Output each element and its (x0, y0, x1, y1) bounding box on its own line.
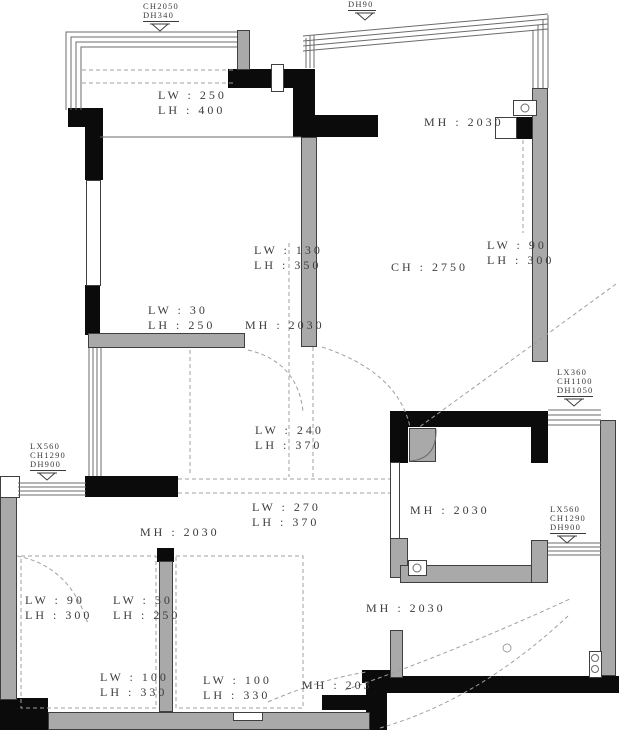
beam-label-7: LW : 90LH : 300 (25, 593, 92, 623)
beam-label-6: LW : 270LH : 370 (252, 500, 321, 530)
window-label-top-mid: DH90 (348, 0, 376, 21)
door-label-1: MH : 2030 (424, 115, 504, 130)
down-arrow-icon (36, 472, 66, 481)
down-arrow-icon (149, 23, 179, 32)
window-label-right-upper: LX360 CH1100 DH1050 (557, 368, 593, 407)
door-label-4: MH : 2030 (140, 525, 220, 540)
beam-label-4: LW : 30LH : 250 (148, 303, 215, 333)
door-label-5: MH : 2030 (366, 601, 446, 616)
beam-label-8: LW : 30LH : 250 (113, 593, 180, 623)
door-label-3: MH : 2030 (410, 503, 490, 518)
beam-label-1: LW : 250LH : 400 (158, 88, 227, 118)
ceiling-label: CH : 2750 (391, 260, 468, 275)
window-label-top-left: LX300 CH2050 DH340 (143, 0, 179, 32)
beam-label-10: LW : 100LH : 330 (203, 673, 272, 703)
window-label-left: LX560 CH1290 DH900 (30, 442, 66, 481)
door-label-2: MH : 2030 (245, 318, 325, 333)
down-arrow-icon (556, 535, 586, 544)
plan-linework (0, 0, 619, 732)
beam-label-5: LW : 240LH : 370 (255, 423, 324, 453)
beam-label-2: LW : 130LH : 350 (254, 243, 323, 273)
floor-plan: LX300 CH2050 DH340 DH90 LX360 CH1100 DH1… (0, 0, 619, 732)
beam-label-9: LW : 100LH : 330 (100, 670, 169, 700)
window-label-right-lower: LX560 CH1290 DH900 (550, 505, 586, 544)
beam-label-3: LW : 90LH : 300 (487, 238, 554, 268)
door-label-6: MH : 203 (302, 678, 373, 693)
down-arrow-icon (563, 398, 593, 407)
down-arrow-icon (354, 12, 376, 21)
